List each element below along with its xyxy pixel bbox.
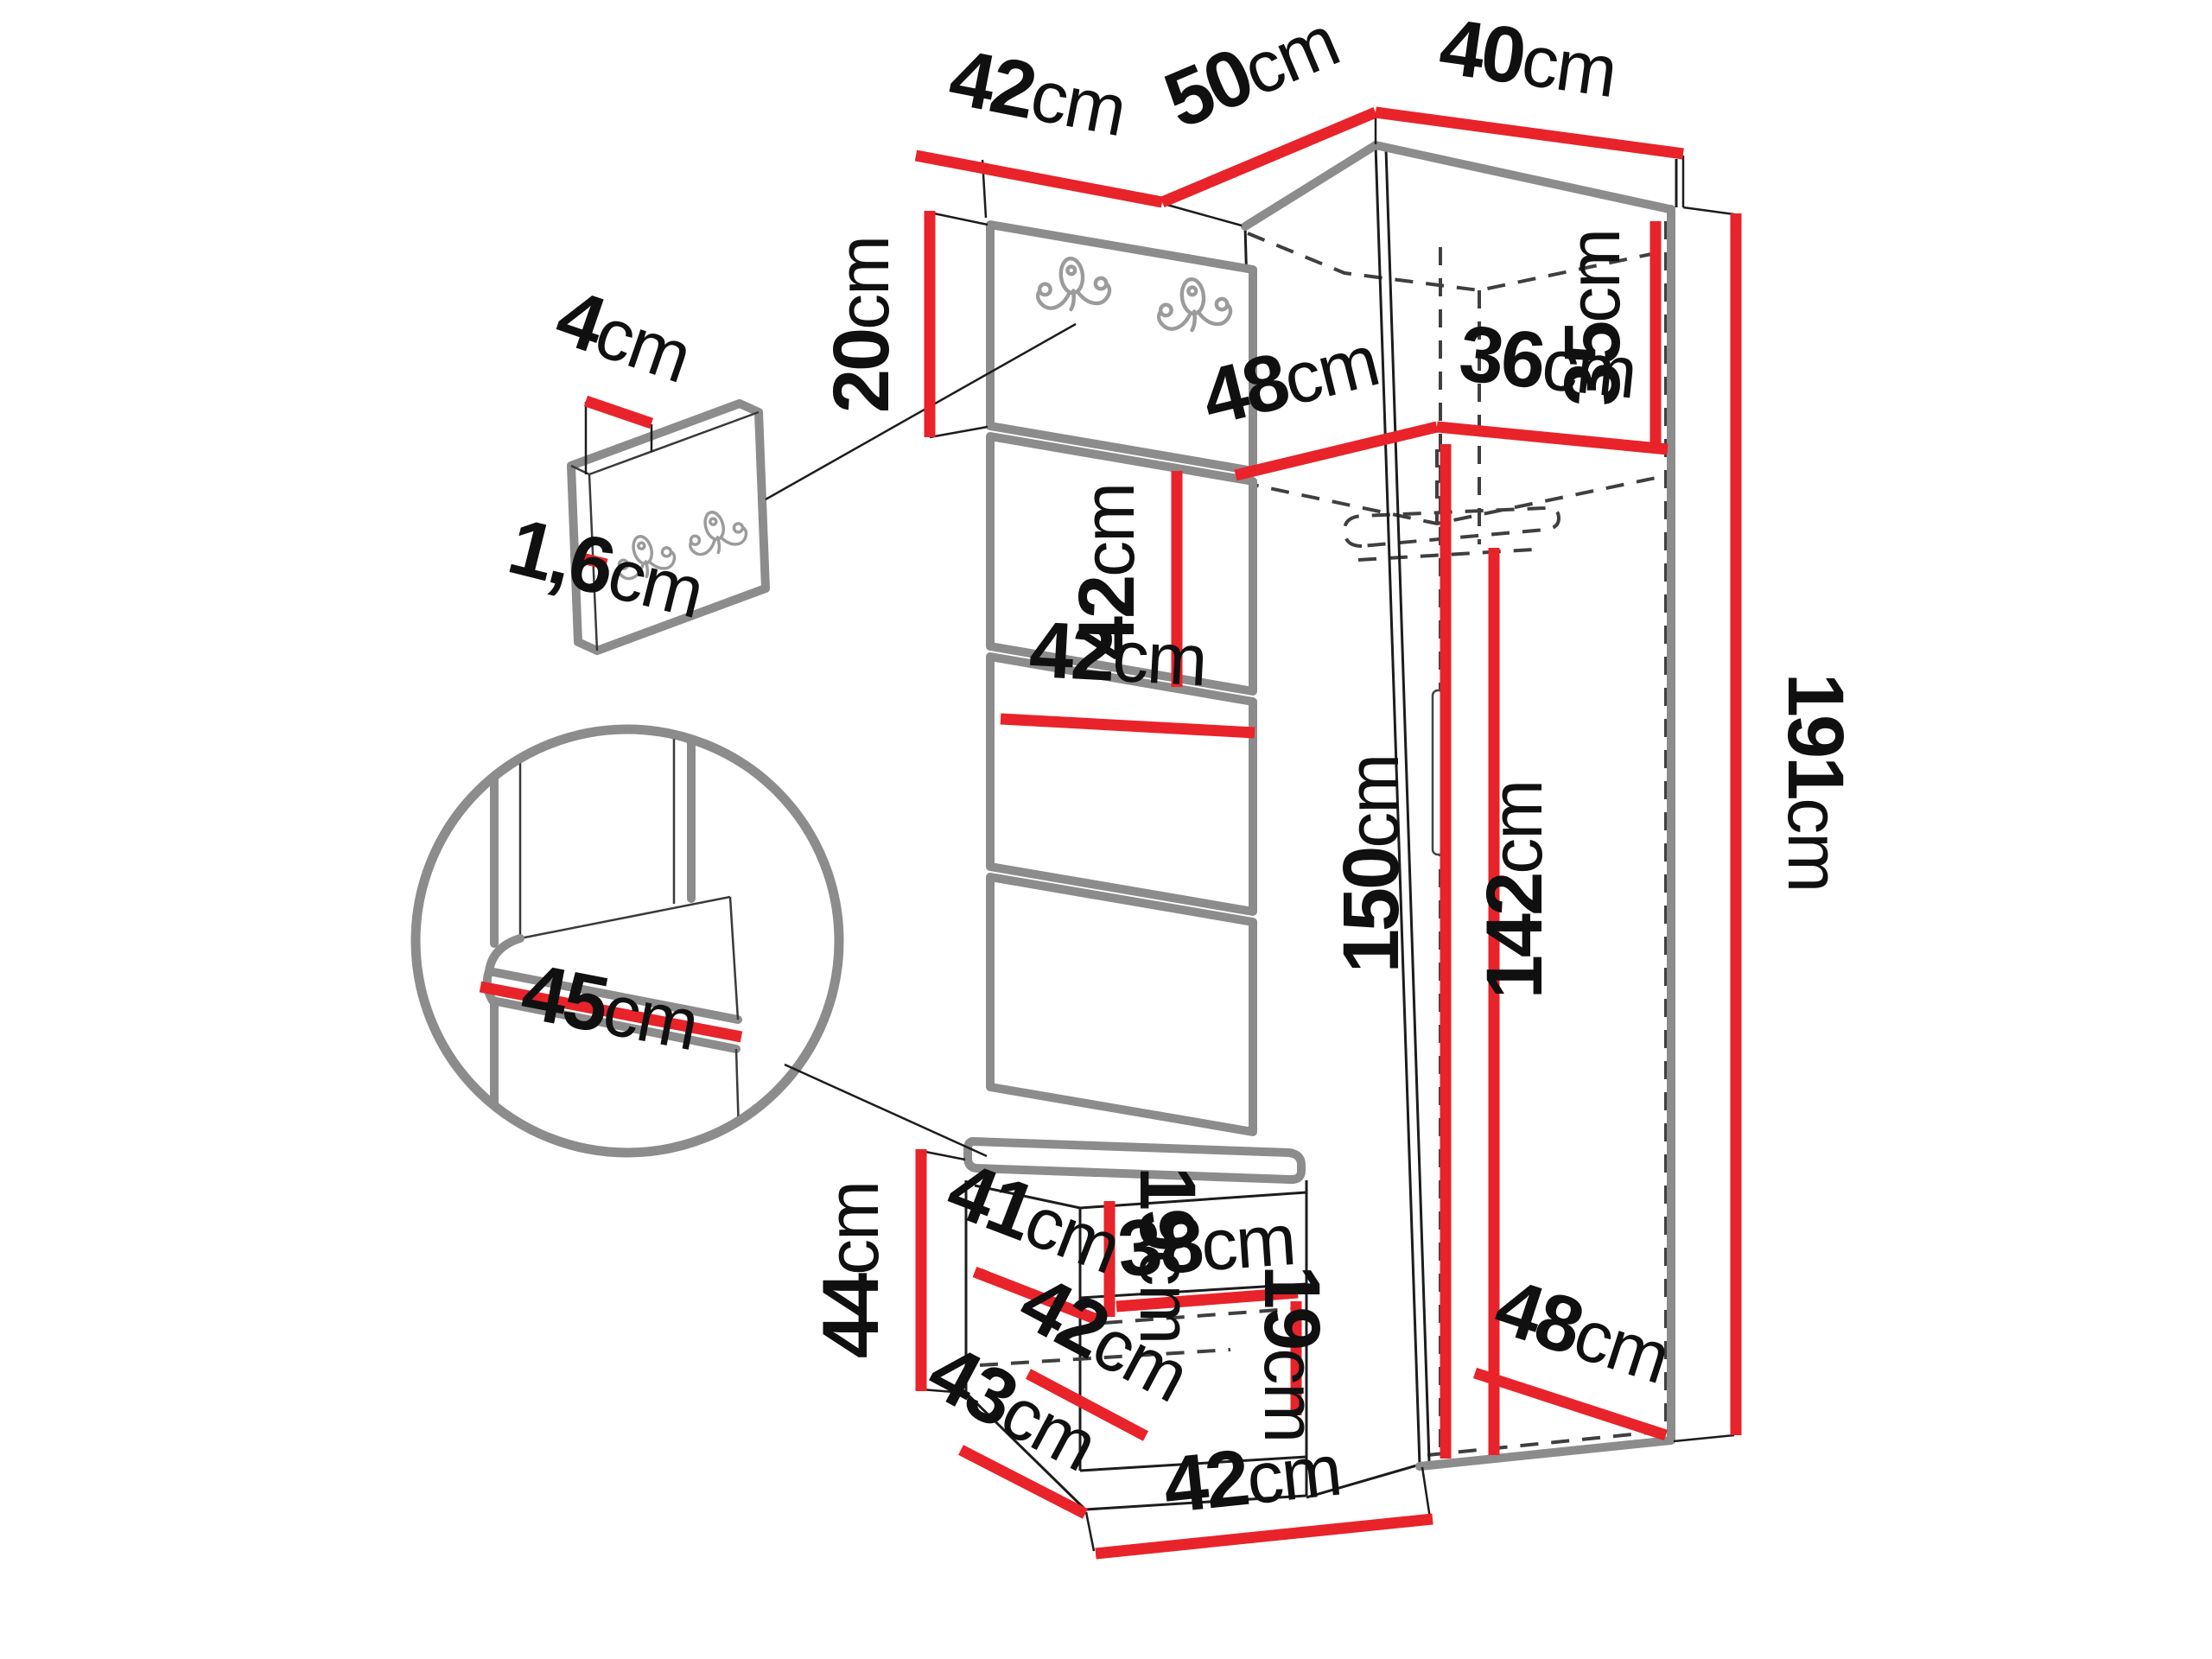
upholstered-pad [990, 877, 1253, 1132]
dimension-label-total-height: 191cm [1771, 673, 1859, 891]
dimension-label-interior-height: 150cm [1327, 755, 1415, 973]
dimension-label-bench-height: 44cm [807, 1182, 895, 1358]
dimension-label-top-niche-height: 35cm [1548, 230, 1637, 406]
dimension-label-hanging-height: 142cm [1471, 781, 1559, 999]
dimension-label-board-height: 20cm [817, 237, 906, 413]
diagram-canvas: 42cm 50cm 40cm 20cm 42cm 48cm 36cm 35cm … [0, 0, 2212, 1659]
furniture-dimension-diagram: 42cm 50cm 40cm 20cm 42cm 48cm 36cm 35cm … [0, 0, 2212, 1659]
dimension-label-lower-compartment-height: 19cm [1248, 1265, 1336, 1441]
dimension-label-pad-width: 42cm [1027, 606, 1208, 703]
